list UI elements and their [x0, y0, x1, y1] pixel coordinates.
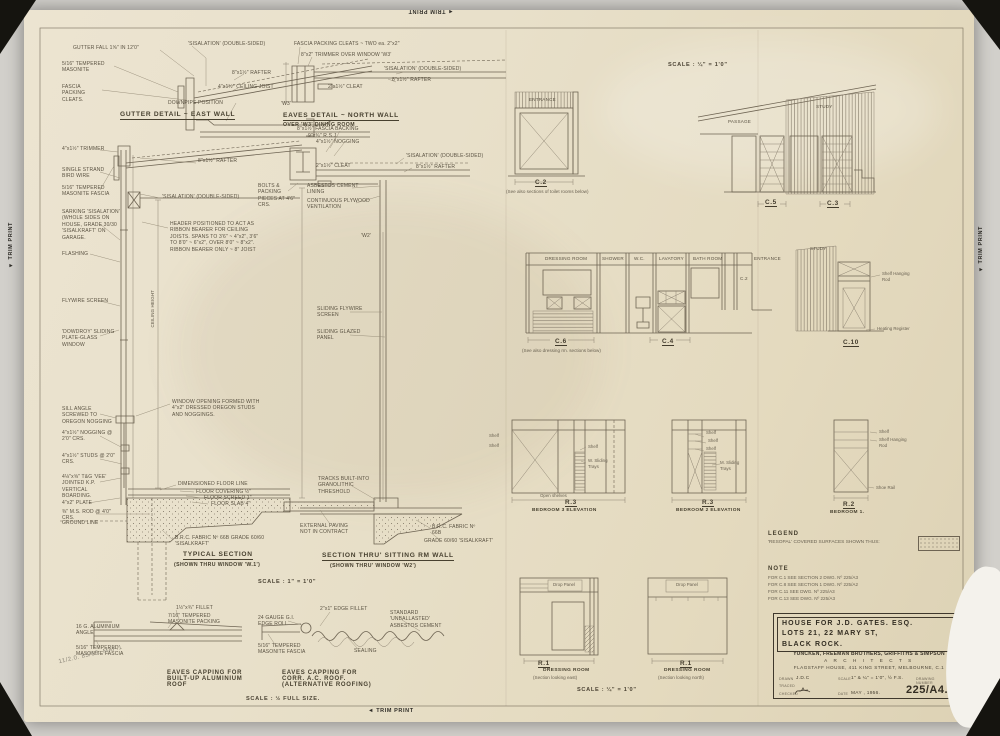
trim-print-bottom: ◄ TRIM PRINT [368, 708, 414, 714]
label-masonite-fascia-right: 5/16" TEMPERED MASONITE FASCIA [258, 643, 310, 656]
ref-c2: C.2 [535, 179, 547, 187]
label-ac-lining: ASBESTOS CEMENT LINING [307, 183, 369, 196]
title-sitting-section: SECTION THRU' SITTING RM WALL [322, 552, 454, 561]
trim-print-label: TRIM PRINT [8, 222, 14, 259]
label-nogging: 4"x1½" NOGGING [316, 139, 386, 145]
note-c6: (See also dressing rm. sections below) [522, 348, 601, 353]
ref-r1-north: R.1 [680, 660, 692, 668]
scale-elevations-bottom: SCALE : ¼" = 1'0" [577, 687, 637, 693]
date-label: DATE [838, 692, 848, 696]
label-edge-fillet: 2"x1" EDGE FILLET [320, 606, 390, 612]
label-bed1-hanging: Shelf Hanging Rod [879, 437, 913, 448]
room-study: STUDY [816, 104, 833, 109]
trim-print-right: ◄ TRIM PRINT [978, 226, 984, 272]
room-wc: W.C. [634, 256, 645, 261]
label-bird-wire: SINGLE STRAND BIRD WIRE [62, 167, 110, 180]
label-w3: 'W3' [281, 101, 301, 107]
note-line-3: FOR C.11 SEE DWG. Nº 225/A3 [768, 589, 835, 594]
legend-resopal-swatch [918, 536, 960, 551]
room-lavatory: LAVATORY [659, 256, 684, 261]
ref-c5: C.5 [765, 199, 777, 207]
bedroom-elevation-lines [512, 420, 877, 503]
room-passage: PASSAGE [728, 119, 751, 124]
label-edge-roll: 24 GAUGE G.I. EDGE ROLL [258, 615, 308, 628]
room-study-c10: STUDY [810, 246, 827, 251]
trim-print-label: TRIM PRINT [978, 226, 984, 263]
label-flashing: FLASHING [62, 251, 107, 257]
title-typical-section: TYPICAL SECTION [183, 551, 253, 560]
drawn-value: J.D.C [796, 676, 810, 681]
label-bed3-open-shelves: Open shelves [540, 493, 567, 499]
checked-signature [794, 686, 814, 696]
label-sill-angle: SILL ANGLE SCREWED TO OREGON NOGGING [62, 406, 118, 425]
label-bed2-shelf2: Shelf [708, 438, 718, 444]
scanned-drawing-photo: GUTTER FALL 1⅝" IN 12'0" 5/16" TEMPERED … [0, 0, 1000, 736]
label-fascia-backing: 8"x1½" FASCIA BACKING [297, 126, 407, 132]
subtitle-r1-north: (Section looking north) [658, 675, 704, 680]
subtitle-sitting-section: (SHOWN THRU' WINDOW 'W2') [330, 563, 416, 569]
toilet-band-lines [526, 253, 772, 343]
label-rafter: 8"x1½" RAFTER [416, 164, 476, 170]
title-capping-left: EAVES CAPPING FOR BUILT-UP ALUMINIUM ROO… [167, 670, 251, 689]
trim-print-top: ◄ TRIM PRINT [408, 8, 454, 14]
room-entrance: ENTRANCE [529, 97, 556, 102]
r1-section-lines [520, 578, 727, 664]
scale-capping: SCALE : ½ FULL SIZE. [246, 696, 320, 702]
label-fillet: 1½"x¾" FILLET [176, 605, 236, 611]
label-downpipe: DOWNPIPE POSITION [168, 100, 248, 106]
architect-address: FLAGSTAFF HOUSE, 411 KING STREET, MELBOU… [774, 665, 964, 670]
label-packing-cleats: FASCIA PACKING CLEATS ~ TWO ea. 2"x2" [294, 41, 454, 47]
label-ground-line: GROUND LINE [62, 520, 118, 526]
legend-title: LEGEND [768, 531, 799, 537]
trim-arrow-icon: ◄ [978, 266, 984, 273]
note-line-1: FOR C.1 SEE SECTION 2 DWG. Nº 225/A3 [768, 575, 858, 580]
label-fascia-cleats: FASCIA PACKING CLEATS. [62, 84, 102, 103]
label-brc-fabric: B.R.C. FABRIC Nº 66B GRADE 60/60 'SISALK… [175, 535, 267, 548]
label-rafter: 8"x1½" RAFTER [392, 77, 452, 83]
label-sliding-window: 'DOWDROY' SLIDING PLATE-GLASS WINDOW [62, 329, 118, 348]
label-masonite-fascia: 5/16" TEMPERED MASONITE FASCIA [62, 185, 112, 198]
note-line-4: FOR C.13 SEE DWG. Nº 225/A3 [768, 596, 835, 601]
trim-arrow-icon: ◄ [448, 8, 454, 14]
title-bed1: BEDROOM 1. [830, 510, 864, 515]
label-bed1-shelf: Shelf [879, 429, 889, 435]
trim-arrow-icon: ◄ [368, 708, 374, 714]
trim-arrow-icon: ◄ [8, 262, 14, 269]
label-ceiling-height: CEILING HEIGHT [150, 290, 160, 327]
title-r1-east: DRESSING ROOM [543, 668, 590, 673]
ref-r3-bed2: R.3 [702, 499, 714, 507]
trim-print-label: TRIM PRINT [408, 8, 445, 14]
scale-sections: SCALE : 1" = 1'0" [258, 579, 316, 585]
trim-print-label: TRIM PRINT [376, 708, 413, 714]
label-sisalation: 'SISALATION' (DOUBLE-SIDED) [406, 153, 526, 159]
label-bed2-shelf3: Shelf [706, 446, 716, 452]
title-gutter-detail: GUTTER DETAIL ~ EAST WALL [120, 111, 235, 120]
project-line-3: BLACK ROCK. [782, 640, 950, 650]
ref-c4: C.4 [662, 338, 674, 346]
label-header-note: HEADER POSITIONED TO ACT AS RIBBON BEARE… [170, 221, 266, 253]
label-bolts: BOLTS & PACKING PIECES AT 4'6" CRS. [258, 183, 300, 209]
label-cleat: 2"x1½" CLEAT [316, 163, 376, 169]
c2-elevation-lines [508, 92, 585, 185]
label-gutter-fall: GUTTER FALL 1⅝" IN 12'0" [73, 45, 168, 51]
label-flywire: FLYWIRE SCREEN [62, 298, 124, 304]
label-window-opening: WINDOW OPENING FORMED WITH 4"x2" DRESSED… [172, 399, 260, 418]
label-cleat: 2"x1½" CLEAT [328, 84, 383, 90]
ref-c6: C.6 [555, 338, 567, 346]
title-bed2: BEDROOM 2 ELEVATION [676, 508, 741, 513]
traced-label: TRACED [779, 684, 795, 688]
title-r1-north: DRESSING ROOM [664, 668, 711, 673]
ref-r1-east: R.1 [538, 660, 550, 668]
label-tracks: TRACKS BUILT-INTO GRANOLITHIC THRESHOLD [318, 476, 376, 495]
trim-print-left: ◄ TRIM PRINT [8, 222, 14, 268]
room-dressing: DRESSING ROOM [545, 256, 587, 261]
note-c2: (See also sections of toilet rooms below… [506, 189, 588, 194]
label-masonite-packing: 7/16" TEMPERED MASONITE PACKING [168, 613, 228, 626]
label-trimmer-w3: 8"x2" TRIMMER OVER WINDOW 'W3' [301, 52, 451, 58]
label-boarding: 4⅛"x⅝" T&G 'VEE' JOINTED K.P. VERTICAL B… [62, 474, 118, 500]
label-masonite: 5/16" TEMPERED MASONITE [62, 61, 114, 74]
label-floor-slab: FLOOR SLAB 4" [211, 501, 271, 507]
note-line-2: FOR C.8 SEE SECTION 1 DWG. Nº 225/A2 [768, 582, 858, 587]
date-value: MAY , 1956. [851, 691, 880, 696]
label-bed3-shelf-left1: Shelf [489, 433, 499, 439]
drawn-label: DRAWN [779, 677, 793, 681]
scale-elevations-top: SCALE : ¼" = 1'0" [668, 62, 728, 68]
label-brc-fabric: B.R.C. FABRIC Nº 66B [432, 524, 484, 537]
label-bed2-shelf1: Shelf [706, 430, 716, 436]
drawing-number: 225/A4. [906, 684, 948, 696]
room-entrance-right: ENTRANCE [754, 256, 781, 261]
ref-c10: C.10 [843, 339, 859, 347]
label-w2: 'W2' [361, 233, 381, 239]
legend-text: 'RESOPAL' COVERED SURFACES SHOWN THUS: [768, 540, 880, 545]
label-trimmer: 4"x1½" TRIMMER [62, 146, 117, 152]
label-heating-register: Heating Register [877, 326, 925, 332]
room-bathroom: BATH ROOM [693, 256, 722, 261]
label-asbestos-cement: STANDARD 'UNBALLASTED' ASBESTOS CEMENT [390, 610, 456, 629]
label-bed1-shoe-rail: Shoe Rail [876, 485, 895, 491]
scale-label: SCALE [838, 677, 851, 681]
subtitle-r1-east: (Section looking east) [533, 675, 577, 680]
architect-firm: YUNCKEN, FREEMAN BROTHERS, GRIFFITHS & S… [774, 651, 964, 657]
label-sliding-flywire: SLIDING FLYWIRE SCREEN [317, 306, 365, 319]
label-sealing: SEALING [354, 648, 394, 654]
label-shelf-hanging-rod: Shelf Hanging Rod [882, 271, 916, 282]
title-bed3: BEDROOM 3 ELEVATION [532, 508, 597, 513]
project-line-2: LOTS 21, 22 MARY ST, [782, 629, 950, 639]
label-c2-strip: C.2 [740, 276, 748, 281]
label-studs: 4"x1½" STUDS @ 2'0" CRS. [62, 453, 118, 466]
label-floor-line: DIMENSIONED FLOOR LINE [178, 481, 278, 487]
label-bed3-shelf-left2: Shelf [489, 443, 499, 449]
architect-profession: A R C H I T E C T S [774, 658, 964, 663]
label-grade-sisalkraft: GRADE 60/60 'SISALKRAFT' [424, 538, 504, 544]
label-sliding-glazed: SLIDING GLAZED PANEL [317, 329, 365, 342]
label-drop-panel-east: Drop Panel [553, 582, 575, 588]
title-block: HOUSE FOR J.D. GATES. ESQ. LOTS 21, 22 M… [773, 613, 965, 699]
scale-value: 1" & ¼" = 1'0", ½ F.S. [851, 676, 903, 681]
c5-c3-lines [698, 85, 876, 207]
ref-c3: C.3 [827, 200, 839, 208]
label-ceiling-joist: 4"x1½" CEILING JOIST [218, 84, 288, 90]
label-sisalation: 'SISALATION' (DOUBLE-SIDED) [384, 66, 504, 72]
label-bed2-trays: M. Sliding Trays [720, 460, 748, 471]
title-block-project: HOUSE FOR J.D. GATES. ESQ. LOTS 21, 22 M… [777, 617, 955, 652]
label-drop-panel-north: Drop Panel [676, 582, 698, 588]
c10-lines [796, 246, 884, 331]
label-bed3-trays: W. Sliding Trays [588, 458, 616, 469]
label-ext-paving: EXTERNAL PAVING NOT IN CONTRACT [300, 523, 358, 536]
label-rafter: 8"x1½" RAFTER [198, 158, 258, 164]
label-sisalation: 'SISALATION' (DOUBLE-SIDED) [188, 41, 308, 47]
title-capping-right: EAVES CAPPING FOR CORR. A.C. ROOF. (ALTE… [282, 670, 378, 689]
label-plate: 4"x2" PLATE [62, 500, 112, 506]
label-rafter: 8"x1½" RAFTER [232, 70, 292, 76]
title-eaves-north: EAVES DETAIL ~ NORTH WALL [283, 112, 399, 121]
label-bed3-shelf: Shelf [588, 444, 598, 450]
label-aluminium-angle: 16 G. ALUMINIUM ANGLE [76, 624, 128, 637]
label-nogging: 4"x1½" NOGGING @ 2'0" CRS. [62, 430, 118, 443]
ref-r3-bed3: R.3 [565, 499, 577, 507]
ref-r2-bed1: R.2 [843, 501, 855, 509]
note-title: NOTE [768, 566, 789, 572]
label-sarking: SARKING 'SISALATION' (WHOLE SIDES ON HOU… [62, 209, 120, 241]
label-ply-vent: CONTINUOUS PLYWOOD VENTILATION [307, 198, 379, 211]
room-shower: SHOWER [602, 256, 624, 261]
subtitle-typical-section: (SHOWN THRU WINDOW 'W.1') [174, 562, 260, 568]
project-line-1: HOUSE FOR J.D. GATES. ESQ. [782, 619, 950, 629]
